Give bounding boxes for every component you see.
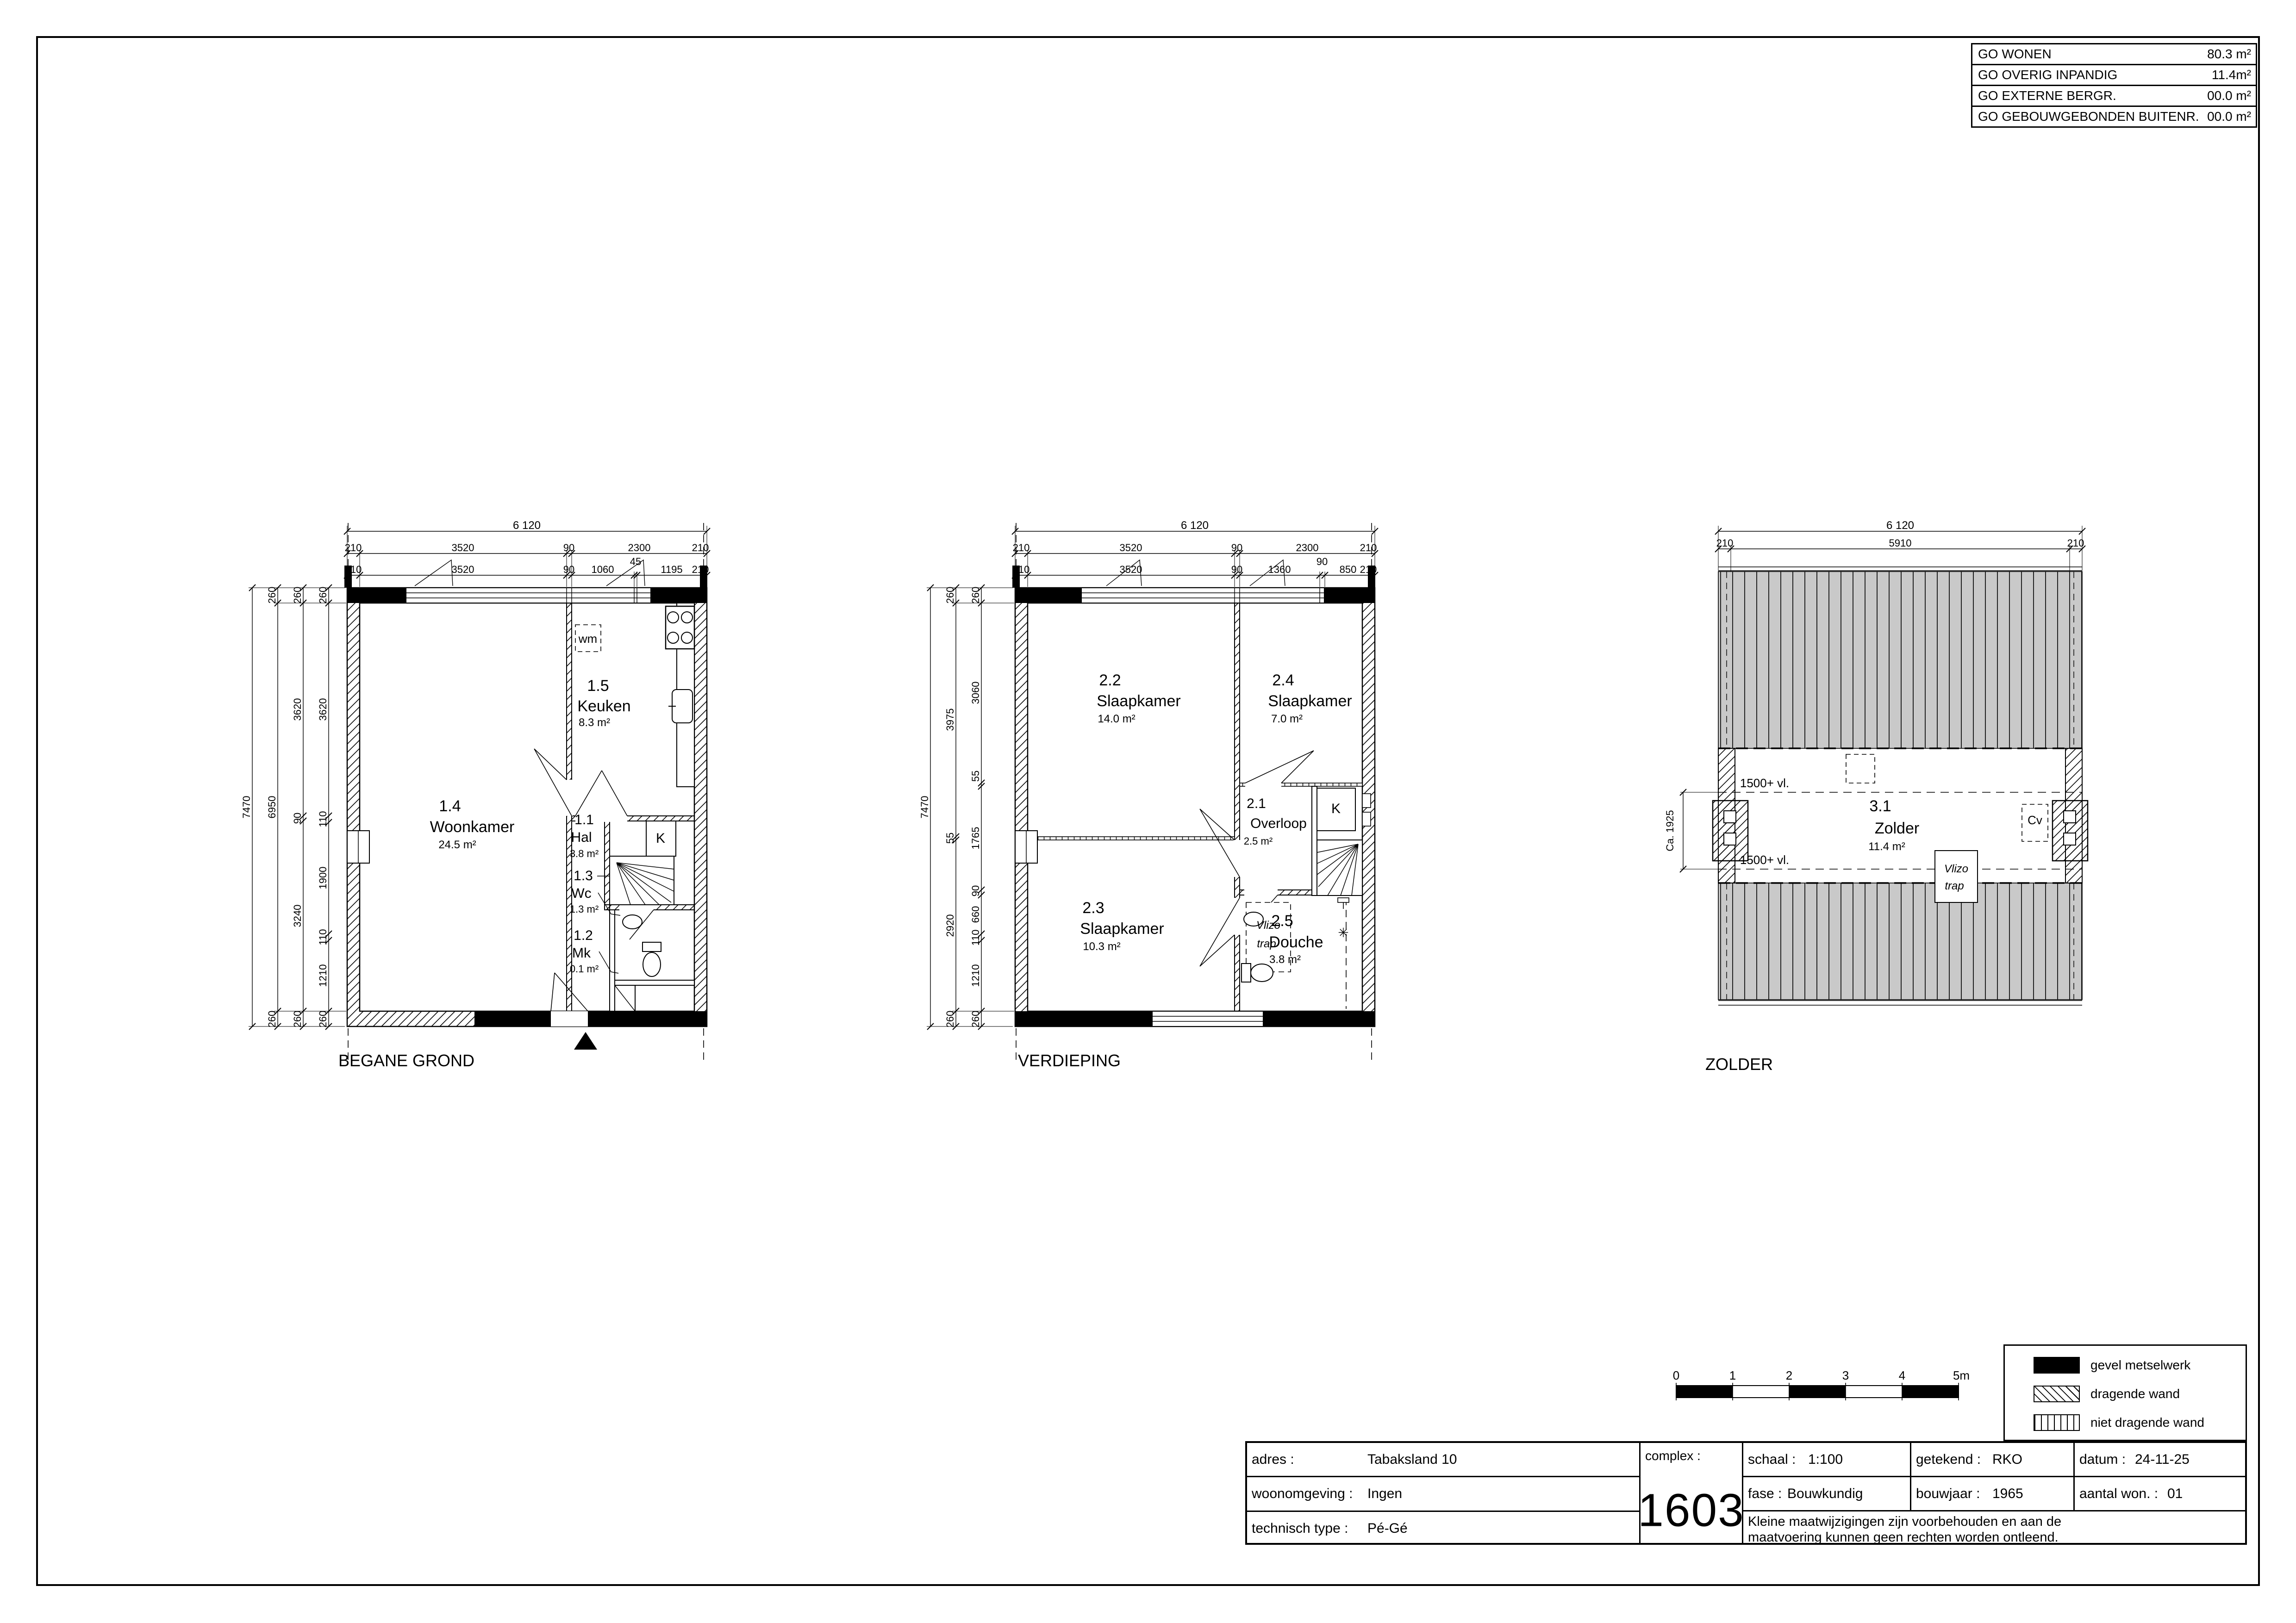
room-slaapkamer22-name: Slaapkamer xyxy=(1097,693,1180,709)
room-mk-number: 1.2 xyxy=(574,929,593,943)
legend-item: niet dragende wand xyxy=(2005,1409,2246,1436)
dim-label: 260 xyxy=(971,1011,981,1028)
titleblock-aantal-cell: aantal won. : 01 xyxy=(2075,1477,2247,1511)
go-table-row: GO GEBOUWGEBONDEN BUITENR. 00.0 m² xyxy=(1972,107,2256,126)
legend-item: dragende wand xyxy=(2005,1380,2246,1408)
dim-label: 210 xyxy=(1013,565,1030,575)
dim-label: 210 xyxy=(1360,565,1377,575)
dim-label: 1195 xyxy=(661,565,682,575)
dim-label: 6 120 xyxy=(513,520,541,531)
room-douche-number: 2.5 xyxy=(1271,913,1293,929)
height-line-label: 1500+ vl. xyxy=(1740,854,1789,866)
dim-label: 7470 xyxy=(920,796,930,819)
scalebar-tick: 3 xyxy=(1842,1369,1849,1381)
titleblock-bouwjaar-cell: bouwjaar : 1965 xyxy=(1911,1477,2075,1511)
dim-label: 210 xyxy=(1716,538,1734,548)
room-overloop-number: 2.1 xyxy=(1247,797,1266,811)
dim-label: 1360 xyxy=(1268,565,1291,575)
dim-label: 90 xyxy=(1231,543,1242,553)
go-area-table: GO WONEN 80.3 m² GO OVERIG INPANDIG 11.4… xyxy=(1971,43,2257,128)
room-hal-area: 3.8 m² xyxy=(570,849,599,859)
dim-label: 260 xyxy=(318,1011,328,1028)
room-keuken-name: Keuken xyxy=(577,698,630,714)
room-keuken-number: 1.5 xyxy=(587,678,609,694)
aantal-won-value: 01 xyxy=(2167,1486,2183,1502)
room-wc-number: 1.3 xyxy=(574,869,593,883)
legend-label: niet dragende wand xyxy=(2090,1415,2204,1430)
scalebar-tick: 0 xyxy=(1673,1369,1679,1381)
dim-label: 6 120 xyxy=(1181,520,1209,531)
legend-label: dragende wand xyxy=(2090,1387,2180,1401)
dim-label: 3520 xyxy=(1120,543,1142,553)
plan-title-begane-grond: BEGANE GROND xyxy=(338,1052,474,1069)
dim-label: 6950 xyxy=(267,796,277,819)
room-douche-name: Douche xyxy=(1269,934,1323,950)
room-zolder-number: 3.1 xyxy=(1869,798,1891,814)
dim-label: 210 xyxy=(345,565,362,575)
drawing-sheet: BEGANE GRONDVERDIEPINGZOLDER1.4Woonkamer… xyxy=(0,0,2296,1623)
room-zolder-area: 11.4 m² xyxy=(1868,841,1905,852)
dim-label: 260 xyxy=(945,587,955,604)
room-hal-number: 1.1 xyxy=(574,813,594,827)
dim-label: 110 xyxy=(318,811,328,827)
dim-label: 90 xyxy=(1231,565,1242,575)
woonomgeving-value: Ingen xyxy=(1367,1486,1402,1502)
aantal-won-label: aantal won. : xyxy=(2079,1486,2158,1502)
dim-label: 90 xyxy=(563,565,574,575)
room-slaapkamer23-number: 2.3 xyxy=(1082,900,1104,916)
dim-label: 90 xyxy=(1316,557,1328,567)
plan-title-zolder: ZOLDER xyxy=(1705,1056,1773,1073)
room-mk-name: Mk xyxy=(572,946,591,960)
dim-label: 1210 xyxy=(971,964,981,987)
titleblock-complex-cell: complex : 1603 xyxy=(1641,1443,1743,1545)
scalebar-tick: 5m xyxy=(1953,1369,1970,1381)
dim-label: 3620 xyxy=(293,698,303,721)
room-woonkamer-number: 1.4 xyxy=(439,798,461,814)
complex-number: 1603 xyxy=(1638,1484,1744,1537)
dim-label: 90 xyxy=(971,885,981,896)
legend-swatch-niet-dragende-wand xyxy=(2034,1414,2080,1431)
dim-label: 210 xyxy=(345,543,362,553)
go-table-row: GO EXTERNE BERGR. 00.0 m² xyxy=(1972,86,2256,107)
room-zolder-name: Zolder xyxy=(1875,821,1919,836)
dim-label: 660 xyxy=(971,906,981,923)
dim-label: 1060 xyxy=(592,565,614,575)
dim-label: 3975 xyxy=(945,709,955,731)
closet-k-label-bg: K xyxy=(656,832,665,846)
go-row-label: GO EXTERNE BERGR. xyxy=(1978,86,2116,106)
dim-label: 260 xyxy=(293,587,303,604)
scalebar-tick: 4 xyxy=(1899,1369,1905,1381)
dim-label: 6 120 xyxy=(1886,520,1914,531)
dim-label: 3520 xyxy=(1120,565,1142,575)
dim-label: Ca. 1925 xyxy=(1665,810,1675,851)
dim-label: 5910 xyxy=(1889,538,1912,548)
titleblock-adres-cell: adres : Tabaksland 10 xyxy=(1247,1443,1641,1477)
room-keuken-area: 8.3 m² xyxy=(579,717,610,728)
vlizo-trap-label-zl: trap xyxy=(1945,881,1964,892)
shower-icon: ✳ xyxy=(1338,927,1348,939)
dim-label: 110 xyxy=(971,929,981,945)
dim-label: 55 xyxy=(971,771,981,782)
disclaimer-line1: Kleine maatwijzigingen zijn voorbehouden… xyxy=(1748,1514,2061,1530)
getekend-label: getekend : xyxy=(1916,1452,1981,1468)
plan-title-verdieping: VERDIEPING xyxy=(1018,1052,1121,1069)
datum-label: datum : xyxy=(2079,1452,2126,1468)
room-slaapkamer23-name: Slaapkamer xyxy=(1080,921,1164,937)
room-slaapkamer24-area: 7.0 m² xyxy=(1271,714,1303,725)
dim-label: 3620 xyxy=(318,698,328,721)
go-table-row: GO OVERIG INPANDIG 11.4m² xyxy=(1972,65,2256,86)
dim-label: 1765 xyxy=(971,827,981,850)
room-wc-name: Wc xyxy=(571,887,591,901)
dim-label: 1210 xyxy=(318,964,328,987)
technisch-type-value: Pé-Gé xyxy=(1367,1521,1408,1536)
dim-label: 110 xyxy=(318,929,328,945)
titleblock-disclaimer-cell: Kleine maatwijzigingen zijn voorbehouden… xyxy=(1743,1511,2247,1545)
room-hal-name: Hal xyxy=(571,831,592,845)
titleblock-technisch-cell: technisch type : Pé-Gé xyxy=(1247,1512,1641,1545)
dim-label: 1900 xyxy=(318,867,328,889)
dim-label: 90 xyxy=(293,813,303,824)
cv-label: Cv xyxy=(2028,814,2042,826)
room-slaapkamer22-number: 2.2 xyxy=(1099,672,1121,688)
legend-label: gevel metselwerk xyxy=(2090,1358,2190,1373)
go-row-value: 80.3 m² xyxy=(2207,44,2251,64)
schaal-label: schaal : xyxy=(1748,1452,1796,1468)
title-block: adres : Tabaksland 10 woonomgeving : Ing… xyxy=(1245,1441,2247,1545)
dim-label: 260 xyxy=(267,587,277,604)
dim-label: 210 xyxy=(692,543,709,553)
dim-label: 3240 xyxy=(293,905,303,927)
dim-label: 210 xyxy=(2067,538,2084,548)
room-overloop-name: Overloop xyxy=(1250,817,1307,831)
go-row-label: GO GEBOUWGEBONDEN BUITENR. xyxy=(1978,107,2199,126)
titleblock-fase-cell: fase : Bouwkundig xyxy=(1743,1477,1911,1511)
bouwjaar-label: bouwjaar : xyxy=(1916,1486,1980,1502)
disclaimer-line2: maatvoering kunnen geen rechten worden o… xyxy=(1748,1530,2059,1545)
dim-label: 260 xyxy=(318,587,328,604)
dim-label: 3520 xyxy=(452,543,474,553)
room-wc-area: 1.3 m² xyxy=(570,904,599,914)
fase-label: fase : xyxy=(1748,1486,1782,1502)
go-table-row: GO WONEN 80.3 m² xyxy=(1972,44,2256,65)
dim-label: 850 xyxy=(1340,565,1357,575)
dim-label: 260 xyxy=(293,1011,303,1028)
dim-label: 3060 xyxy=(971,682,981,704)
room-slaapkamer24-name: Slaapkamer xyxy=(1268,693,1352,709)
dim-label: 45 xyxy=(630,557,641,567)
go-row-value: 11.4m² xyxy=(2212,65,2251,85)
titleblock-getekend-cell: getekend : RKO xyxy=(1911,1443,2075,1477)
titleblock-datum-cell: datum : 24-11-25 xyxy=(2075,1443,2247,1477)
closet-k-label-vd: K xyxy=(1331,802,1341,816)
room-woonkamer-name: Woonkamer xyxy=(430,819,515,835)
legend-swatch-dragende-wand xyxy=(2034,1386,2080,1402)
bouwjaar-value: 1965 xyxy=(1992,1486,2023,1502)
getekend-value: RKO xyxy=(1992,1452,2022,1468)
room-mk-area: 0.1 m² xyxy=(570,964,599,974)
dim-label: 260 xyxy=(945,1011,955,1028)
room-douche-area: 3.8 m² xyxy=(1269,954,1301,965)
go-row-label: GO WONEN xyxy=(1978,44,2052,64)
schaal-value: 1:100 xyxy=(1808,1452,1843,1468)
legend-item: gevel metselwerk xyxy=(2005,1351,2246,1379)
go-row-value: 00.0 m² xyxy=(2207,86,2251,106)
scalebar-tick: 2 xyxy=(1786,1369,1792,1381)
adres-label: adres : xyxy=(1252,1452,1294,1468)
washing-machine-label: wm xyxy=(579,633,597,645)
fase-value: Bouwkundig xyxy=(1787,1486,1863,1502)
scalebar-tick: 1 xyxy=(1729,1369,1736,1381)
woonomgeving-label: woonomgeving : xyxy=(1252,1486,1353,1502)
dim-label: 210 xyxy=(1013,543,1030,553)
dim-label: 3520 xyxy=(452,565,474,575)
complex-label: complex : xyxy=(1645,1449,1701,1463)
titleblock-schaal-cell: schaal : 1:100 xyxy=(1743,1443,1911,1477)
room-slaapkamer24-number: 2.4 xyxy=(1272,672,1294,688)
dim-label: 260 xyxy=(267,1011,277,1028)
room-slaapkamer22-area: 14.0 m² xyxy=(1098,714,1135,725)
adres-value: Tabaksland 10 xyxy=(1367,1452,1457,1468)
titleblock-woonomgeving-cell: woonomgeving : Ingen xyxy=(1247,1477,1641,1512)
dim-label: 90 xyxy=(563,543,574,553)
go-row-value: 00.0 m² xyxy=(2207,107,2251,126)
dim-label: 210 xyxy=(1360,543,1377,553)
room-overloop-area: 2.5 m² xyxy=(1244,836,1273,846)
dim-label: 55 xyxy=(945,833,955,844)
room-woonkamer-area: 24.5 m² xyxy=(438,839,476,851)
room-slaapkamer23-area: 10.3 m² xyxy=(1083,941,1120,952)
height-line-label: 1500+ vl. xyxy=(1740,777,1789,789)
drawing-text-layer: BEGANE GRONDVERDIEPINGZOLDER1.4Woonkamer… xyxy=(0,0,2296,1623)
dim-label: 2300 xyxy=(1296,543,1319,553)
technisch-type-label: technisch type : xyxy=(1252,1521,1348,1536)
dim-label: 7470 xyxy=(242,796,252,819)
dim-label: 210 xyxy=(692,565,709,575)
vlizo-trap-label-zl: Vlizo xyxy=(1944,864,1968,875)
go-row-label: GO OVERIG INPANDIG xyxy=(1978,65,2117,85)
wall-legend: gevel metselwerk dragende wand niet drag… xyxy=(2003,1344,2247,1441)
datum-value: 24-11-25 xyxy=(2135,1452,2190,1468)
dim-label: 260 xyxy=(971,587,981,604)
dim-label: 2920 xyxy=(945,914,955,937)
legend-swatch-gevel-metselwerk xyxy=(2034,1357,2080,1374)
dim-label: 2300 xyxy=(628,543,651,553)
